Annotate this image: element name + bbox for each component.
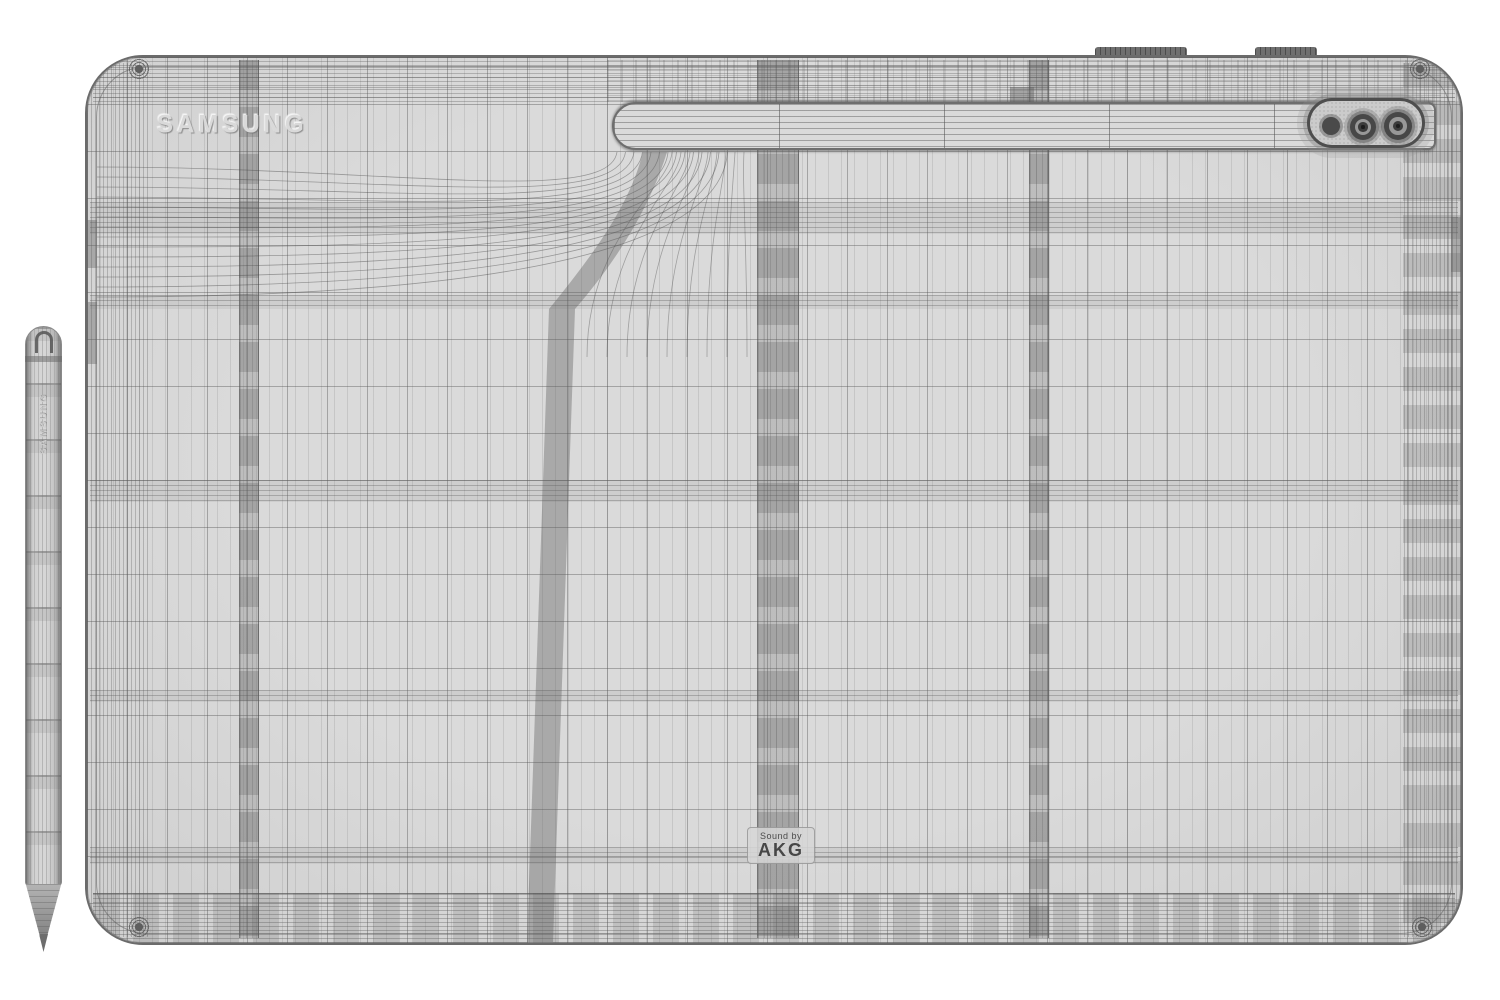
s-pen-samsung-logo: SAMSUNG: [38, 393, 49, 455]
akg-logo: AKG: [748, 841, 814, 859]
back-cover-seam: [96, 66, 1452, 934]
tablet-back-panel: SAMSUNG Sound by AKG: [85, 55, 1463, 945]
s-pen-taper: [25, 884, 62, 936]
corner-detail-top-right: [1408, 57, 1432, 81]
akg-audio-branding: Sound by AKG: [747, 827, 815, 864]
corner-detail-top-left: [127, 57, 151, 81]
s-pen-cap-detail: [35, 331, 53, 353]
left-edge-antenna-patch: [87, 302, 97, 364]
camera-lens-icon: [1384, 112, 1412, 140]
right-edge-antenna-patch: [1451, 217, 1461, 272]
corner-detail-bottom-right: [1410, 915, 1434, 939]
left-edge-antenna-patch: [87, 220, 97, 268]
camera-lens-icon: [1350, 114, 1376, 140]
s-pen-cap-band: [25, 356, 62, 362]
s-pen-tip: [39, 934, 48, 952]
camera-module: [1307, 98, 1425, 148]
render-canvas: SAMSUNG Sound by AKG SAMSUNG: [0, 0, 1500, 1000]
corner-detail-bottom-left: [127, 915, 151, 939]
samsung-logo: SAMSUNG: [157, 110, 308, 139]
s-pen-stylus: SAMSUNG: [25, 326, 62, 950]
flash-icon: [1322, 117, 1340, 135]
